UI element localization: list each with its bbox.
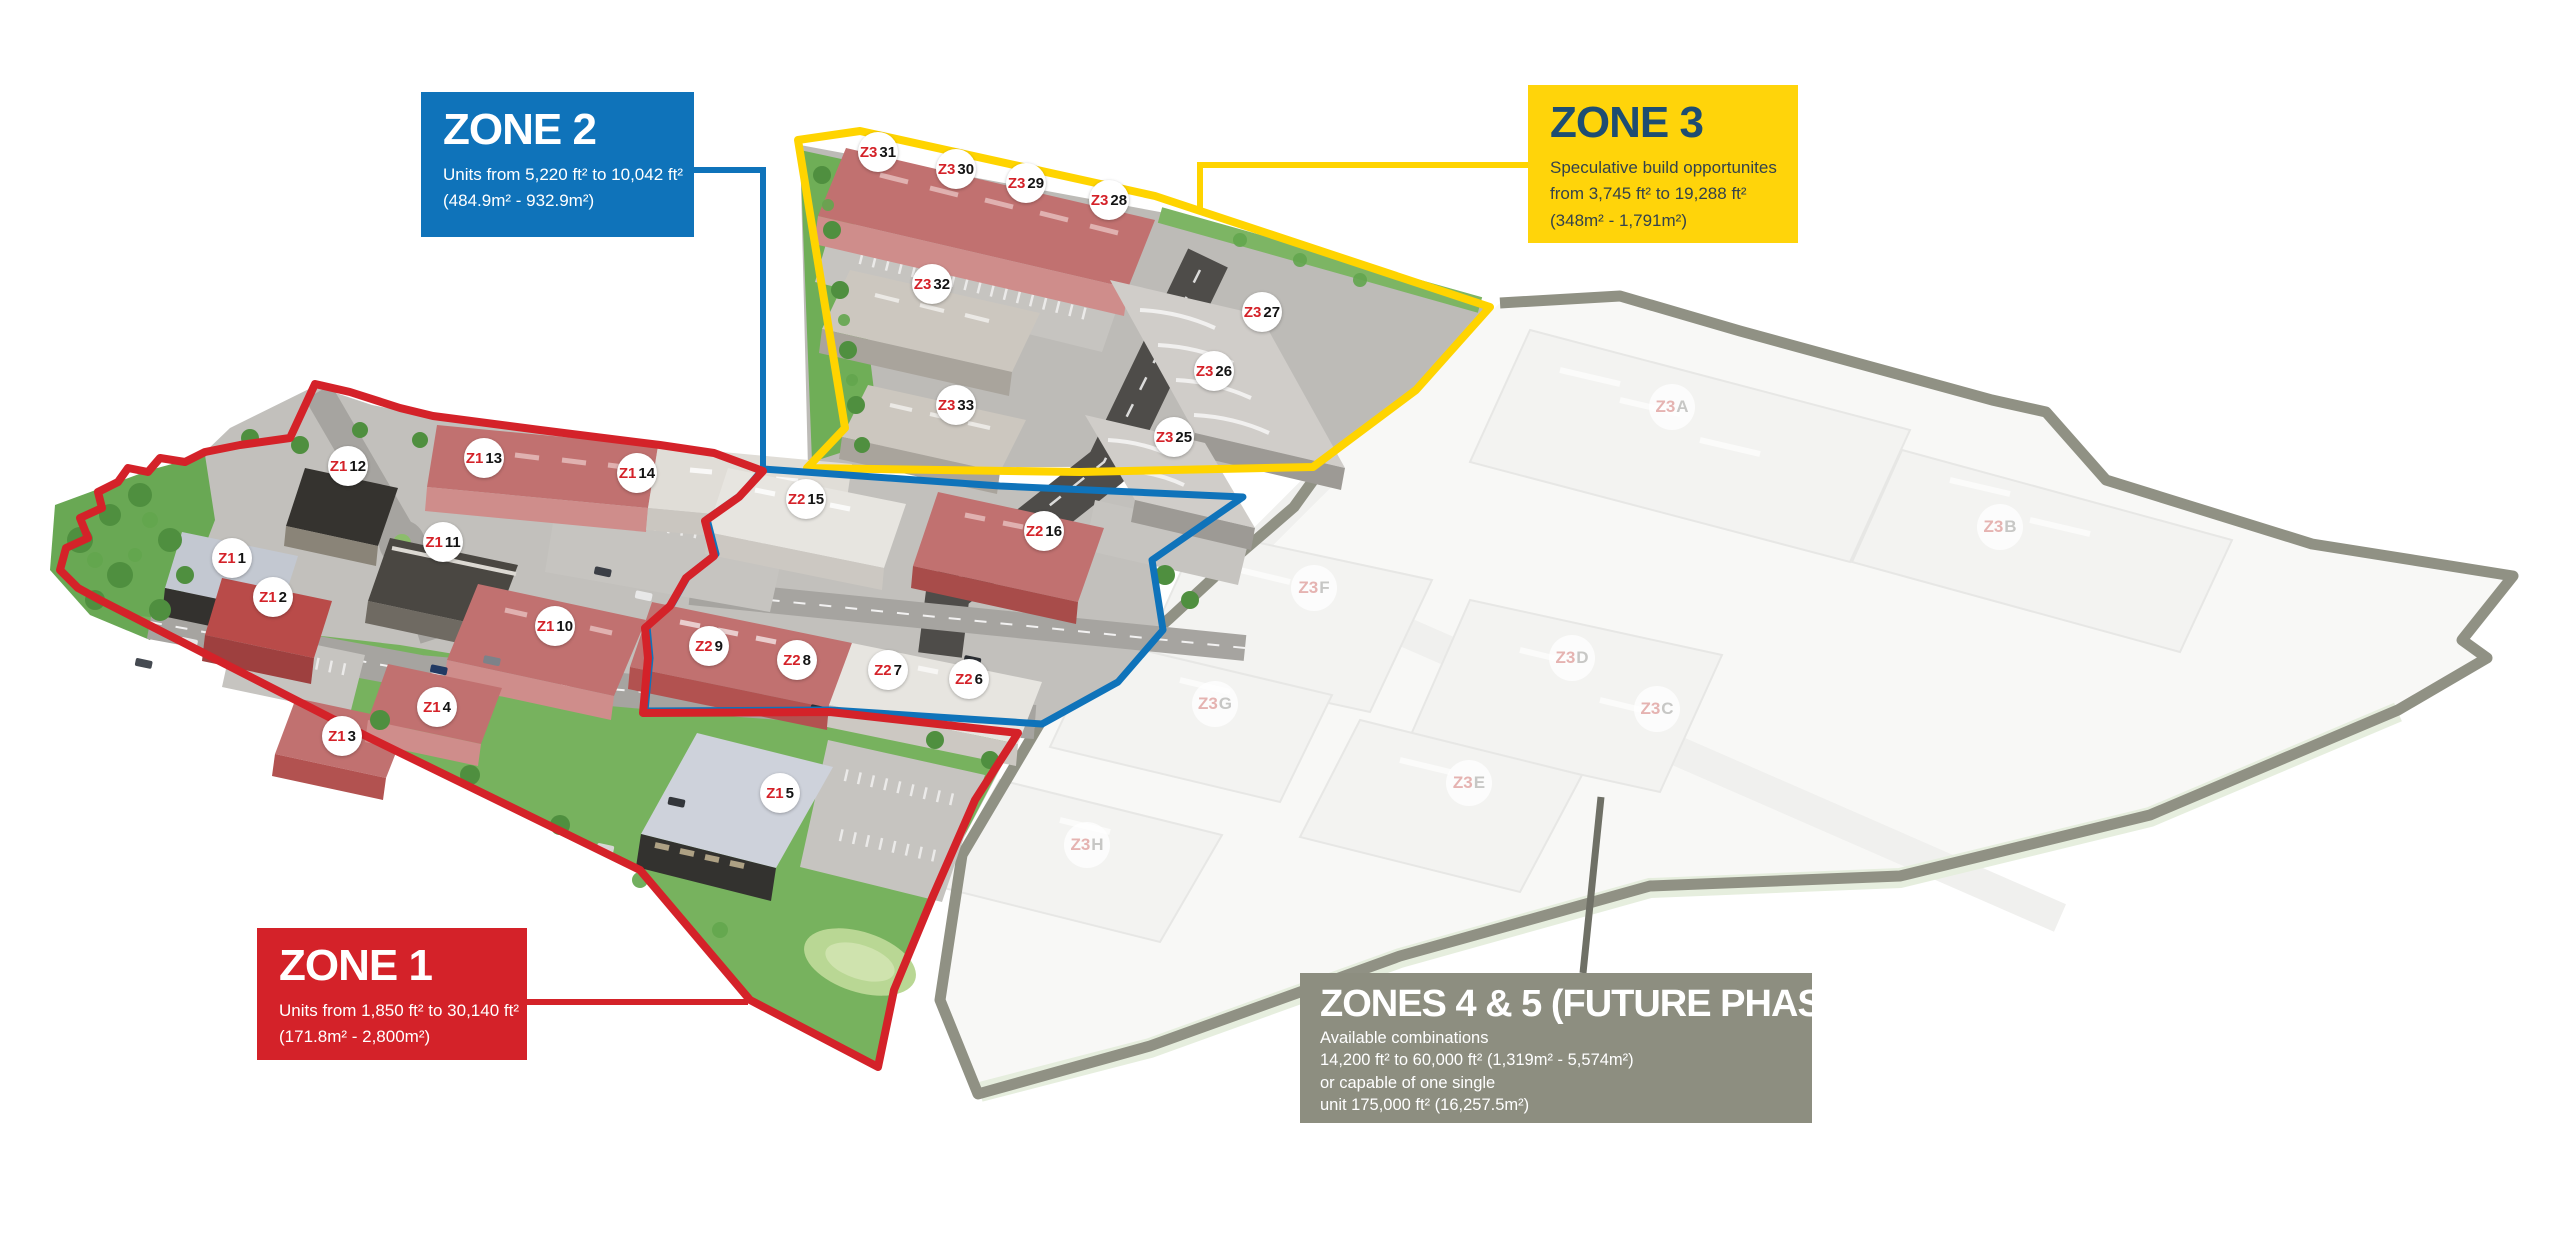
- unit-marker-Z3-H: Z3H: [1064, 822, 1110, 868]
- unit-marker-number: 31: [879, 144, 896, 161]
- unit-marker-zone-prefix: Z2: [874, 662, 892, 679]
- unit-marker-zone-prefix: Z3: [1196, 363, 1214, 380]
- zones45-info-box: ZONES 4 & 5 (FUTURE PHASE) Available com…: [1300, 973, 1812, 1123]
- unit-marker-zone-prefix: Z3: [914, 276, 932, 293]
- unit-marker-zone-prefix: Z3: [1640, 699, 1660, 719]
- unit-marker-Z3-D: Z3D: [1549, 635, 1595, 681]
- unit-marker-number: D: [1576, 648, 1588, 668]
- unit-marker-zone-prefix: Z1: [766, 785, 784, 802]
- unit-marker-number: 30: [957, 161, 974, 178]
- unit-marker-Z3-27: Z327: [1242, 292, 1282, 332]
- unit-marker-zone-prefix: Z1: [466, 450, 484, 467]
- zone3-info-box: ZONE 3 Speculative build opportunites fr…: [1528, 85, 1798, 243]
- unit-marker-Z3-E: Z3E: [1446, 760, 1492, 806]
- unit-marker-Z3-33: Z333: [936, 385, 976, 425]
- zones45-title: ZONES 4 & 5 (FUTURE PHASE): [1320, 985, 1792, 1023]
- unit-marker-zone-prefix: Z3: [938, 397, 956, 414]
- unit-marker-Z1-3: Z13: [322, 716, 362, 756]
- unit-marker-number: 12: [349, 458, 366, 475]
- unit-marker-number: 16: [1045, 523, 1062, 540]
- unit-marker-number: 7: [894, 662, 902, 679]
- unit-marker-Z2-8: Z28: [777, 640, 817, 680]
- unit-marker-number: A: [1676, 397, 1688, 417]
- unit-marker-number: E: [1474, 773, 1485, 793]
- zone3-size-range-metric: (348m² - 1,791m²): [1550, 208, 1776, 234]
- unit-marker-number: 2: [279, 589, 287, 606]
- zone1-size-range-metric: (171.8m² - 2,800m²): [279, 1024, 505, 1050]
- unit-marker-Z3-A: Z3A: [1649, 384, 1695, 430]
- unit-marker-Z1-10: Z110: [535, 606, 575, 646]
- unit-marker-Z2-15: Z215: [786, 479, 826, 519]
- zones45-single-option: or capable of one single: [1320, 1072, 1792, 1094]
- unit-marker-number: 10: [556, 618, 573, 635]
- zone1-info-box: ZONE 1 Units from 1,850 ft² to 30,140 ft…: [257, 928, 527, 1060]
- unit-marker-zone-prefix: Z3: [1298, 578, 1318, 598]
- unit-marker-zone-prefix: Z3: [1244, 304, 1262, 321]
- unit-marker-number: H: [1091, 835, 1103, 855]
- unit-marker-number: C: [1661, 699, 1673, 719]
- unit-marker-zone-prefix: Z3: [1091, 192, 1109, 209]
- unit-marker-number: 5: [786, 785, 794, 802]
- unit-marker-number: 14: [638, 465, 655, 482]
- unit-marker-Z1-14: Z114: [617, 453, 657, 493]
- zone2-size-range: Units from 5,220 ft² to 10,042 ft²: [443, 162, 672, 188]
- unit-marker-Z2-9: Z29: [689, 626, 729, 666]
- unit-marker-zone-prefix: Z2: [1026, 523, 1044, 540]
- unit-marker-zone-prefix: Z3: [1156, 429, 1174, 446]
- unit-marker-Z1-5: Z15: [760, 773, 800, 813]
- unit-marker-number: G: [1219, 694, 1232, 714]
- zone1-title: ZONE 1: [279, 944, 505, 988]
- unit-marker-zone-prefix: Z3: [1198, 694, 1218, 714]
- unit-marker-zone-prefix: Z3: [1655, 397, 1675, 417]
- unit-marker-Z3-F: Z3F: [1291, 565, 1337, 611]
- unit-marker-Z1-4: Z14: [417, 687, 457, 727]
- unit-marker-number: 33: [957, 397, 974, 414]
- unit-marker-Z3-29: Z329: [1006, 163, 1046, 203]
- unit-marker-number: 29: [1027, 175, 1044, 192]
- unit-marker-number: 13: [485, 450, 502, 467]
- unit-marker-zone-prefix: Z3: [1070, 835, 1090, 855]
- unit-marker-number: 28: [1110, 192, 1127, 209]
- unit-marker-Z3-31: Z331: [858, 132, 898, 172]
- zone2-info-box: ZONE 2 Units from 5,220 ft² to 10,042 ft…: [421, 92, 694, 237]
- unit-marker-zone-prefix: Z3: [860, 144, 878, 161]
- unit-marker-zone-prefix: Z2: [695, 638, 713, 655]
- siteplan-canvas: Z11Z12Z13Z14Z15Z110Z111Z112Z113Z114Z26Z2…: [0, 0, 2560, 1243]
- unit-marker-Z2-16: Z216: [1024, 511, 1064, 551]
- unit-marker-Z2-7: Z27: [868, 650, 908, 690]
- unit-marker-number: 8: [803, 652, 811, 669]
- unit-marker-Z1-12: Z112: [328, 446, 368, 486]
- unit-marker-zone-prefix: Z3: [1008, 175, 1026, 192]
- unit-marker-zone-prefix: Z2: [783, 652, 801, 669]
- unit-marker-number: 6: [975, 671, 983, 688]
- unit-marker-Z1-13: Z113: [464, 438, 504, 478]
- unit-marker-zone-prefix: Z2: [955, 671, 973, 688]
- zone3-size-range: from 3,745 ft² to 19,288 ft²: [1550, 181, 1776, 207]
- unit-marker-number: 15: [807, 491, 824, 508]
- unit-marker-Z1-11: Z111: [423, 522, 463, 562]
- zones45-size-range: 14,200 ft² to 60,000 ft² (1,319m² - 5,57…: [1320, 1049, 1792, 1071]
- unit-marker-number: 1: [238, 550, 246, 567]
- unit-marker-zone-prefix: Z3: [938, 161, 956, 178]
- unit-marker-Z3-G: Z3G: [1192, 681, 1238, 727]
- unit-marker-number: 3: [348, 728, 356, 745]
- unit-marker-Z3-32: Z332: [912, 264, 952, 304]
- unit-marker-Z3-B: Z3B: [1977, 504, 2023, 550]
- unit-marker-Z3-25: Z325: [1154, 417, 1194, 457]
- unit-marker-number: 25: [1175, 429, 1192, 446]
- unit-marker-zone-prefix: Z1: [328, 728, 346, 745]
- unit-marker-zone-prefix: Z1: [330, 458, 348, 475]
- zone2-size-range-metric: (484.9m² - 932.9m²): [443, 188, 672, 214]
- unit-marker-zone-prefix: Z3: [1983, 517, 2003, 537]
- unit-marker-number: 11: [445, 534, 461, 551]
- zone2-title: ZONE 2: [443, 108, 672, 152]
- unit-marker-number: 32: [933, 276, 950, 293]
- zones45-single-size: unit 175,000 ft² (16,257.5m²): [1320, 1094, 1792, 1116]
- unit-marker-zone-prefix: Z1: [619, 465, 637, 482]
- unit-marker-number: 9: [715, 638, 723, 655]
- unit-marker-number: 27: [1263, 304, 1280, 321]
- unit-marker-Z2-6: Z26: [949, 659, 989, 699]
- unit-marker-zone-prefix: Z3: [1453, 773, 1473, 793]
- unit-marker-number: F: [1319, 578, 1329, 598]
- unit-marker-zone-prefix: Z1: [423, 699, 441, 716]
- unit-marker-zone-prefix: Z2: [788, 491, 806, 508]
- unit-marker-zone-prefix: Z1: [537, 618, 555, 635]
- unit-marker-Z3-30: Z330: [936, 149, 976, 189]
- unit-marker-Z1-1: Z11: [212, 538, 252, 578]
- unit-marker-Z1-2: Z12: [253, 577, 293, 617]
- unit-marker-zone-prefix: Z1: [425, 534, 443, 551]
- unit-marker-Z3-26: Z326: [1194, 351, 1234, 391]
- unit-marker-zone-prefix: Z1: [259, 589, 277, 606]
- zones45-description: Available combinations: [1320, 1027, 1792, 1049]
- unit-marker-number: 4: [443, 699, 451, 716]
- unit-marker-zone-prefix: Z3: [1555, 648, 1575, 668]
- zone3-leader-line: [1200, 165, 1528, 208]
- unit-marker-zone-prefix: Z1: [218, 550, 236, 567]
- unit-marker-Z3-C: Z3C: [1634, 686, 1680, 732]
- zone3-title: ZONE 3: [1550, 101, 1776, 145]
- zone2-leader-line: [694, 170, 763, 466]
- unit-marker-Z3-28: Z328: [1089, 180, 1129, 220]
- zone1-size-range: Units from 1,850 ft² to 30,140 ft²: [279, 998, 505, 1024]
- unit-marker-number: 26: [1215, 363, 1232, 380]
- zone3-description: Speculative build opportunites: [1550, 155, 1776, 181]
- unit-marker-number: B: [2004, 517, 2016, 537]
